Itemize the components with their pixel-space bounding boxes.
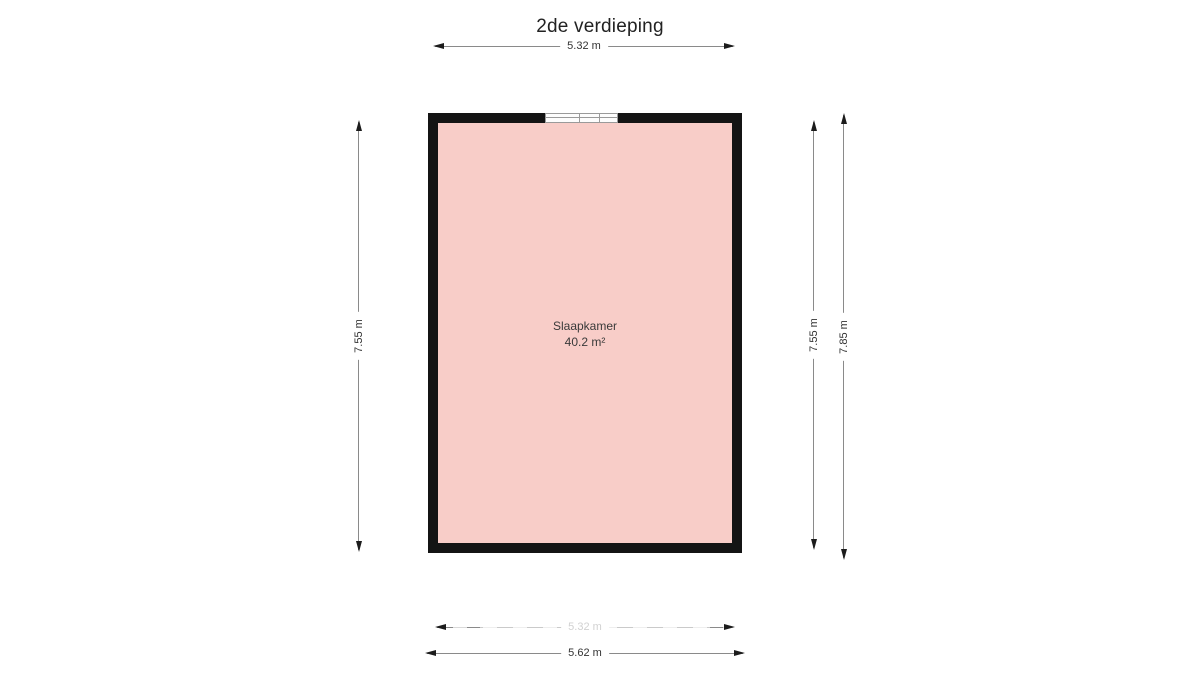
arrow-up-icon: [841, 113, 847, 124]
window-divider: [599, 114, 600, 122]
room-label: Slaapkamer 40.2 m²: [428, 318, 742, 350]
arrow-right-icon: [724, 624, 735, 630]
arrow-down-icon: [841, 549, 847, 560]
arrow-right-icon: [724, 43, 735, 49]
dimension-label: 5.62 m: [561, 647, 609, 659]
arrow-down-icon: [811, 539, 817, 550]
room-name-label: Slaapkamer: [428, 318, 742, 334]
arrow-up-icon: [356, 120, 362, 131]
arrow-left-icon: [433, 43, 444, 49]
dimension-label: 7.55 m: [353, 312, 365, 360]
room-area-label: 40.2 m²: [428, 334, 742, 350]
arrow-left-icon: [425, 650, 436, 656]
page-title: 2de verdieping: [0, 16, 1200, 38]
dimension-label: 7.55 m: [808, 311, 820, 359]
arrow-right-icon: [734, 650, 745, 656]
arrow-down-icon: [356, 541, 362, 552]
window-divider: [579, 114, 580, 122]
window-glass-line: [546, 117, 617, 118]
dimension-label: 5.32 m: [561, 621, 609, 633]
dimension-label: 7.85 m: [838, 313, 850, 361]
floorplan-canvas: 2de verdieping 5.32 m Slaapkamer 40.2 m²…: [0, 0, 1200, 675]
room-bedroom-walls: Slaapkamer 40.2 m²: [428, 113, 742, 553]
arrow-left-icon: [435, 624, 446, 630]
window-icon: [545, 113, 618, 123]
arrow-up-icon: [811, 120, 817, 131]
dimension-label: 5.32 m: [560, 40, 608, 52]
